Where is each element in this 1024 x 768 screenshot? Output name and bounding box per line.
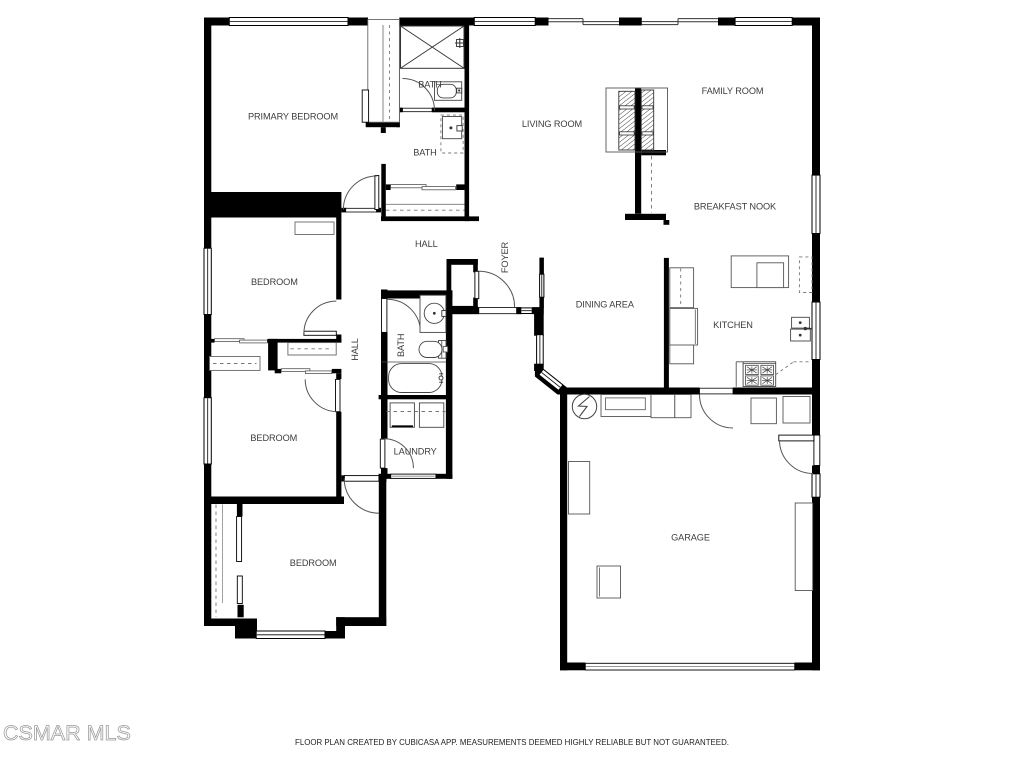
svg-text:BEDROOM: BEDROOM	[290, 558, 337, 568]
svg-text:LAUNDRY: LAUNDRY	[394, 446, 437, 456]
svg-text:GARAGE: GARAGE	[671, 533, 710, 543]
svg-text:DINING AREA: DINING AREA	[576, 300, 635, 310]
svg-text:BREAKFAST NOOK: BREAKFAST NOOK	[694, 202, 777, 212]
svg-text:KITCHEN: KITCHEN	[713, 320, 753, 330]
svg-text:BATH: BATH	[413, 148, 436, 158]
svg-text:BATH: BATH	[396, 334, 406, 357]
svg-text:LIVING ROOM: LIVING ROOM	[522, 119, 582, 129]
svg-text:FOYER: FOYER	[500, 241, 510, 273]
svg-text:BEDROOM: BEDROOM	[250, 433, 297, 443]
svg-text:CSMAR MLS: CSMAR MLS	[3, 721, 131, 745]
svg-text:BATH: BATH	[418, 80, 441, 90]
svg-text:FLOOR PLAN CREATED BY CUBICASA: FLOOR PLAN CREATED BY CUBICASA APP. MEAS…	[295, 738, 729, 747]
svg-text:FAMILY ROOM: FAMILY ROOM	[702, 86, 764, 96]
svg-text:HALL: HALL	[350, 338, 360, 361]
svg-text:HALL: HALL	[415, 239, 438, 249]
svg-text:PRIMARY BEDROOM: PRIMARY BEDROOM	[248, 111, 338, 121]
svg-text:BEDROOM: BEDROOM	[251, 277, 298, 287]
